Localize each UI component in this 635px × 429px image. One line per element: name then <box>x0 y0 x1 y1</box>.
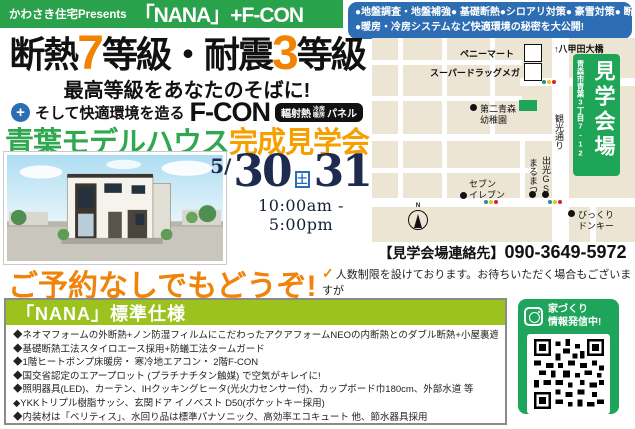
traffic-signal-icon <box>542 80 556 84</box>
model-house-photo <box>4 152 226 264</box>
check-icon: ✓ <box>322 265 334 281</box>
traffic-signal-icon <box>484 200 498 204</box>
map-label-idemitsu: 出光GS <box>540 156 553 194</box>
map-dot-kindergarten <box>470 104 477 111</box>
features-box: ●地盤調査・地盤補強● 基礎断熱●シロアリ対策● 豪雪対策● 断熱材 ●暖房・冷… <box>348 2 632 39</box>
map-label-drugmega: スーパードラッグメガ <box>430 66 520 79</box>
map-label-pennymart: ペニーマート <box>460 47 514 60</box>
spec-item: ◆1階ヒートポンプ床暖房・ 寒冷地エアコン・ 2階F-CON <box>13 356 498 370</box>
event-day-2: 31 <box>314 150 371 194</box>
spec-item: ◆ネオマフォームの外断熱+ノン防湿フィルムにこだわったアクアフォームNEOの内断… <box>13 329 498 343</box>
spec-item: ◆照明器具(LED)、カーテン、IHクッキングヒータ(光火力センサー付)、カップ… <box>13 383 498 397</box>
map-dot-idemitsu <box>542 191 549 198</box>
map-road <box>372 168 537 173</box>
map-road <box>372 96 522 101</box>
event-day-1: 30 <box>233 150 290 194</box>
map-road <box>442 38 447 198</box>
qr-code <box>527 334 610 414</box>
access-map: ↑八甲田大橋 ペニーマート スーパードラッグメガ 第二青森 幼稚園 観光通り 青… <box>372 38 635 242</box>
venue-title: 見学会場 <box>588 60 618 176</box>
headline-grades: 断熱7等級・耐震3等級 <box>0 24 374 79</box>
map-building-pennymart <box>524 44 542 62</box>
presents-label: かわさき住宅Presents <box>9 6 127 22</box>
features-line-1: ●地盤調査・地盤補強● 基礎断熱●シロアリ対策● 豪雪対策● 断熱材 <box>355 6 625 21</box>
map-building-drugmega <box>524 63 542 81</box>
flyer-page: かわさき住宅Presents 「NANA」+F-CON ●地盤調査・地盤補強● … <box>0 0 635 429</box>
map-label-marumatsu: まるまつ <box>527 158 540 194</box>
spec-item: ◆国交省認定のエアープロット (プラチナチタン触媒) で空気がキレイに! <box>13 370 498 384</box>
map-label-kindergarten-2: 幼稚園 <box>480 113 507 126</box>
map-road <box>520 141 525 198</box>
specs-title: 「NANA」標準仕様 <box>6 300 505 325</box>
instagram-icon <box>524 307 543 326</box>
standard-specs-box: 「NANA」標準仕様 ◆ネオマフォームの外断熱+ノン防湿フィルムにこだわったアク… <box>4 298 507 425</box>
specs-list: ◆ネオマフォームの外断熱+ノン防湿フィルムにこだわったアクアフォームNEOの内断… <box>6 325 505 424</box>
venue-marker <box>519 100 537 111</box>
spec-item: ◆YKKトリプル樹脂サッシ、玄関ドア イノベスト D50(ポケットキー採用) <box>13 397 498 411</box>
contact-phone: 090-3649-5972 <box>504 242 626 262</box>
spec-item: ◆基礎断熱工法スタイロエース採用+防蟻工法タームガード <box>13 343 498 357</box>
map-label-donkey-2: ドンキー <box>578 219 614 232</box>
map-dot-seven <box>460 192 467 199</box>
traffic-signal-icon <box>548 200 562 204</box>
saturday-badge: 土 <box>295 171 310 188</box>
house-illustration <box>7 155 223 261</box>
social-qr-box: 家づくり 情報発信中! <box>518 299 619 414</box>
event-time: 10:00am - 5:00pm <box>226 196 376 234</box>
features-line-2: ●暖房・冷房システムなど快適環境の秘密を大公開! <box>355 21 625 36</box>
venue-address: 青森市青葉3丁目7-12 <box>575 60 586 176</box>
note-line-1: 人数制限を設けております。お待ちいただく場合もございますが <box>322 269 631 297</box>
event-date-block: 5/ 30 土 31 日 10:00am - 5:00pm <box>226 150 376 222</box>
map-road <box>398 38 403 198</box>
map-label-street: 観光通り <box>553 114 566 150</box>
contact-line: 【見学会場連絡先】090-3649-5972 <box>370 242 635 263</box>
social-label: 家づくり 情報発信中! <box>548 304 601 329</box>
map-road <box>372 60 522 65</box>
map-dot-donkey <box>568 210 575 217</box>
contact-label: 【見学会場連絡先】 <box>378 245 504 261</box>
spec-item: ◆内装材は「ベリティス」、水回り品は標準パナソニック、高効率エコキュート 他、節… <box>13 411 498 425</box>
venue-banner: 青森市青葉3丁目7-12 見学会場 <box>573 54 620 176</box>
compass-icon: N <box>408 210 428 230</box>
map-dot-marumatsu <box>529 191 536 198</box>
event-month: 5/ <box>210 154 231 178</box>
